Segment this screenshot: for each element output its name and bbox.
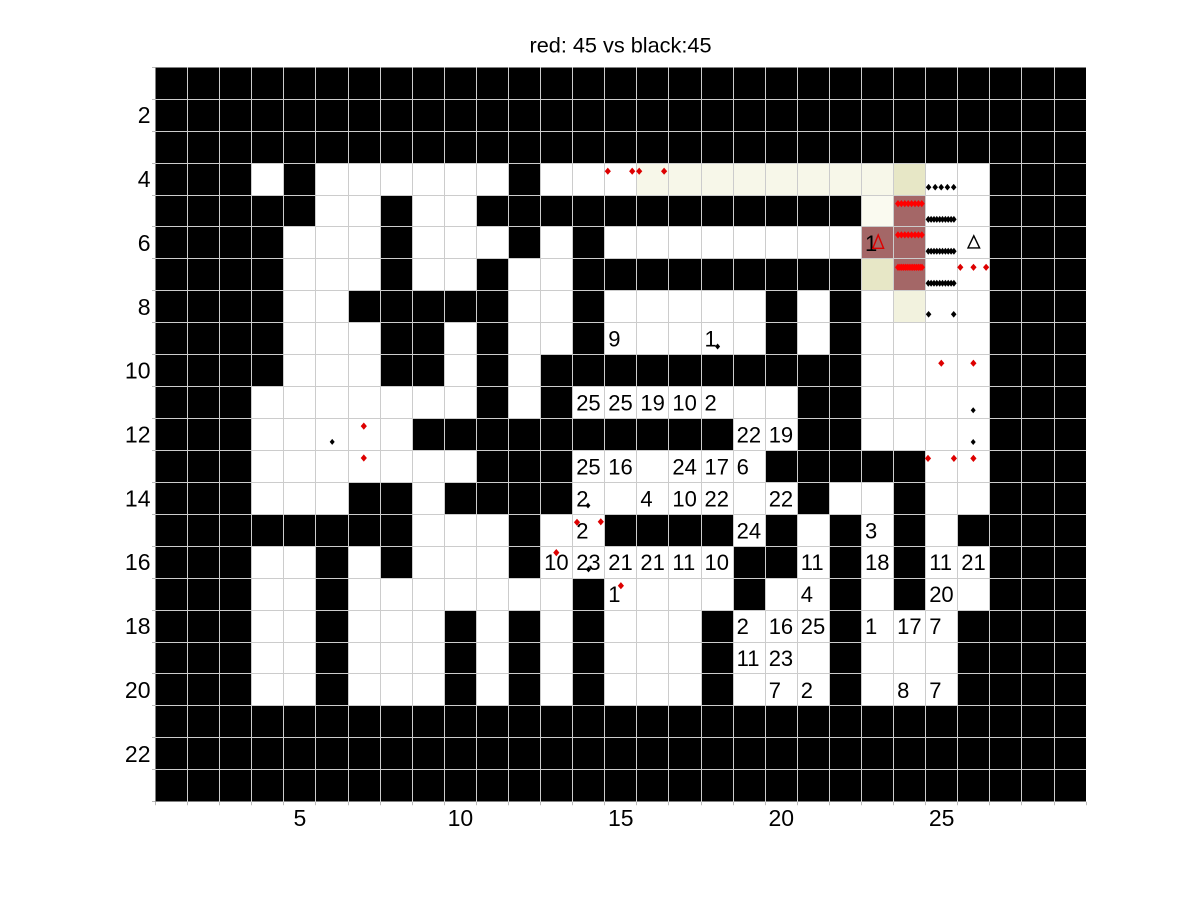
svg-text:20: 20 bbox=[929, 582, 953, 607]
svg-text:16: 16 bbox=[125, 549, 151, 575]
svg-text:12: 12 bbox=[125, 422, 151, 448]
svg-text:23: 23 bbox=[769, 646, 793, 671]
svg-text:21: 21 bbox=[608, 550, 632, 575]
svg-text:21: 21 bbox=[961, 550, 985, 575]
svg-text:25: 25 bbox=[576, 391, 600, 416]
svg-text:25: 25 bbox=[801, 614, 825, 639]
svg-text:25: 25 bbox=[608, 391, 632, 416]
svg-text:2: 2 bbox=[737, 614, 749, 639]
svg-text:22: 22 bbox=[705, 486, 729, 511]
svg-text:18: 18 bbox=[125, 613, 151, 639]
svg-text:22: 22 bbox=[125, 741, 151, 767]
svg-text:22: 22 bbox=[737, 423, 761, 448]
svg-text:7: 7 bbox=[929, 678, 941, 703]
svg-text:2: 2 bbox=[801, 678, 813, 703]
svg-text:24: 24 bbox=[737, 518, 761, 543]
svg-text:16: 16 bbox=[769, 614, 793, 639]
svg-text:6: 6 bbox=[737, 454, 749, 479]
svg-text:11: 11 bbox=[929, 550, 952, 575]
svg-text:17: 17 bbox=[897, 614, 921, 639]
svg-text:25: 25 bbox=[576, 454, 600, 479]
svg-text:1: 1 bbox=[865, 614, 877, 639]
svg-text:10: 10 bbox=[672, 391, 696, 416]
svg-text:4: 4 bbox=[138, 166, 151, 192]
svg-text:21: 21 bbox=[640, 550, 664, 575]
svg-text:25: 25 bbox=[929, 805, 955, 831]
svg-text:4: 4 bbox=[640, 486, 652, 511]
svg-text:2: 2 bbox=[138, 102, 151, 128]
svg-text:4: 4 bbox=[801, 582, 813, 607]
svg-text:11: 11 bbox=[801, 550, 824, 575]
svg-text:20: 20 bbox=[125, 677, 151, 703]
svg-text:19: 19 bbox=[640, 391, 664, 416]
svg-text:24: 24 bbox=[672, 454, 696, 479]
svg-text:3: 3 bbox=[865, 518, 877, 543]
svg-text:2: 2 bbox=[576, 486, 588, 511]
svg-text:5: 5 bbox=[294, 805, 307, 831]
svg-text:10: 10 bbox=[672, 486, 696, 511]
svg-text:1: 1 bbox=[705, 327, 717, 352]
svg-text:7: 7 bbox=[929, 614, 941, 639]
svg-text:10: 10 bbox=[448, 805, 474, 831]
svg-text:22: 22 bbox=[769, 486, 793, 511]
svg-text:11: 11 bbox=[737, 646, 760, 671]
svg-text:2: 2 bbox=[705, 391, 717, 416]
svg-text:20: 20 bbox=[769, 805, 795, 831]
svg-text:10: 10 bbox=[705, 550, 729, 575]
svg-text:15: 15 bbox=[608, 805, 634, 831]
svg-text:8: 8 bbox=[138, 294, 151, 320]
svg-text:19: 19 bbox=[769, 423, 793, 448]
svg-text:10: 10 bbox=[125, 358, 151, 384]
svg-text:16: 16 bbox=[608, 454, 632, 479]
svg-text:7: 7 bbox=[769, 678, 781, 703]
svg-text:8: 8 bbox=[897, 678, 909, 703]
svg-text:9: 9 bbox=[608, 327, 620, 352]
svg-text:18: 18 bbox=[865, 550, 889, 575]
svg-text:17: 17 bbox=[705, 454, 729, 479]
svg-text:14: 14 bbox=[125, 485, 151, 511]
svg-text:11: 11 bbox=[672, 550, 695, 575]
svg-text:red: 45 vs black:45: red: 45 vs black:45 bbox=[529, 33, 711, 58]
svg-text:6: 6 bbox=[138, 230, 151, 256]
